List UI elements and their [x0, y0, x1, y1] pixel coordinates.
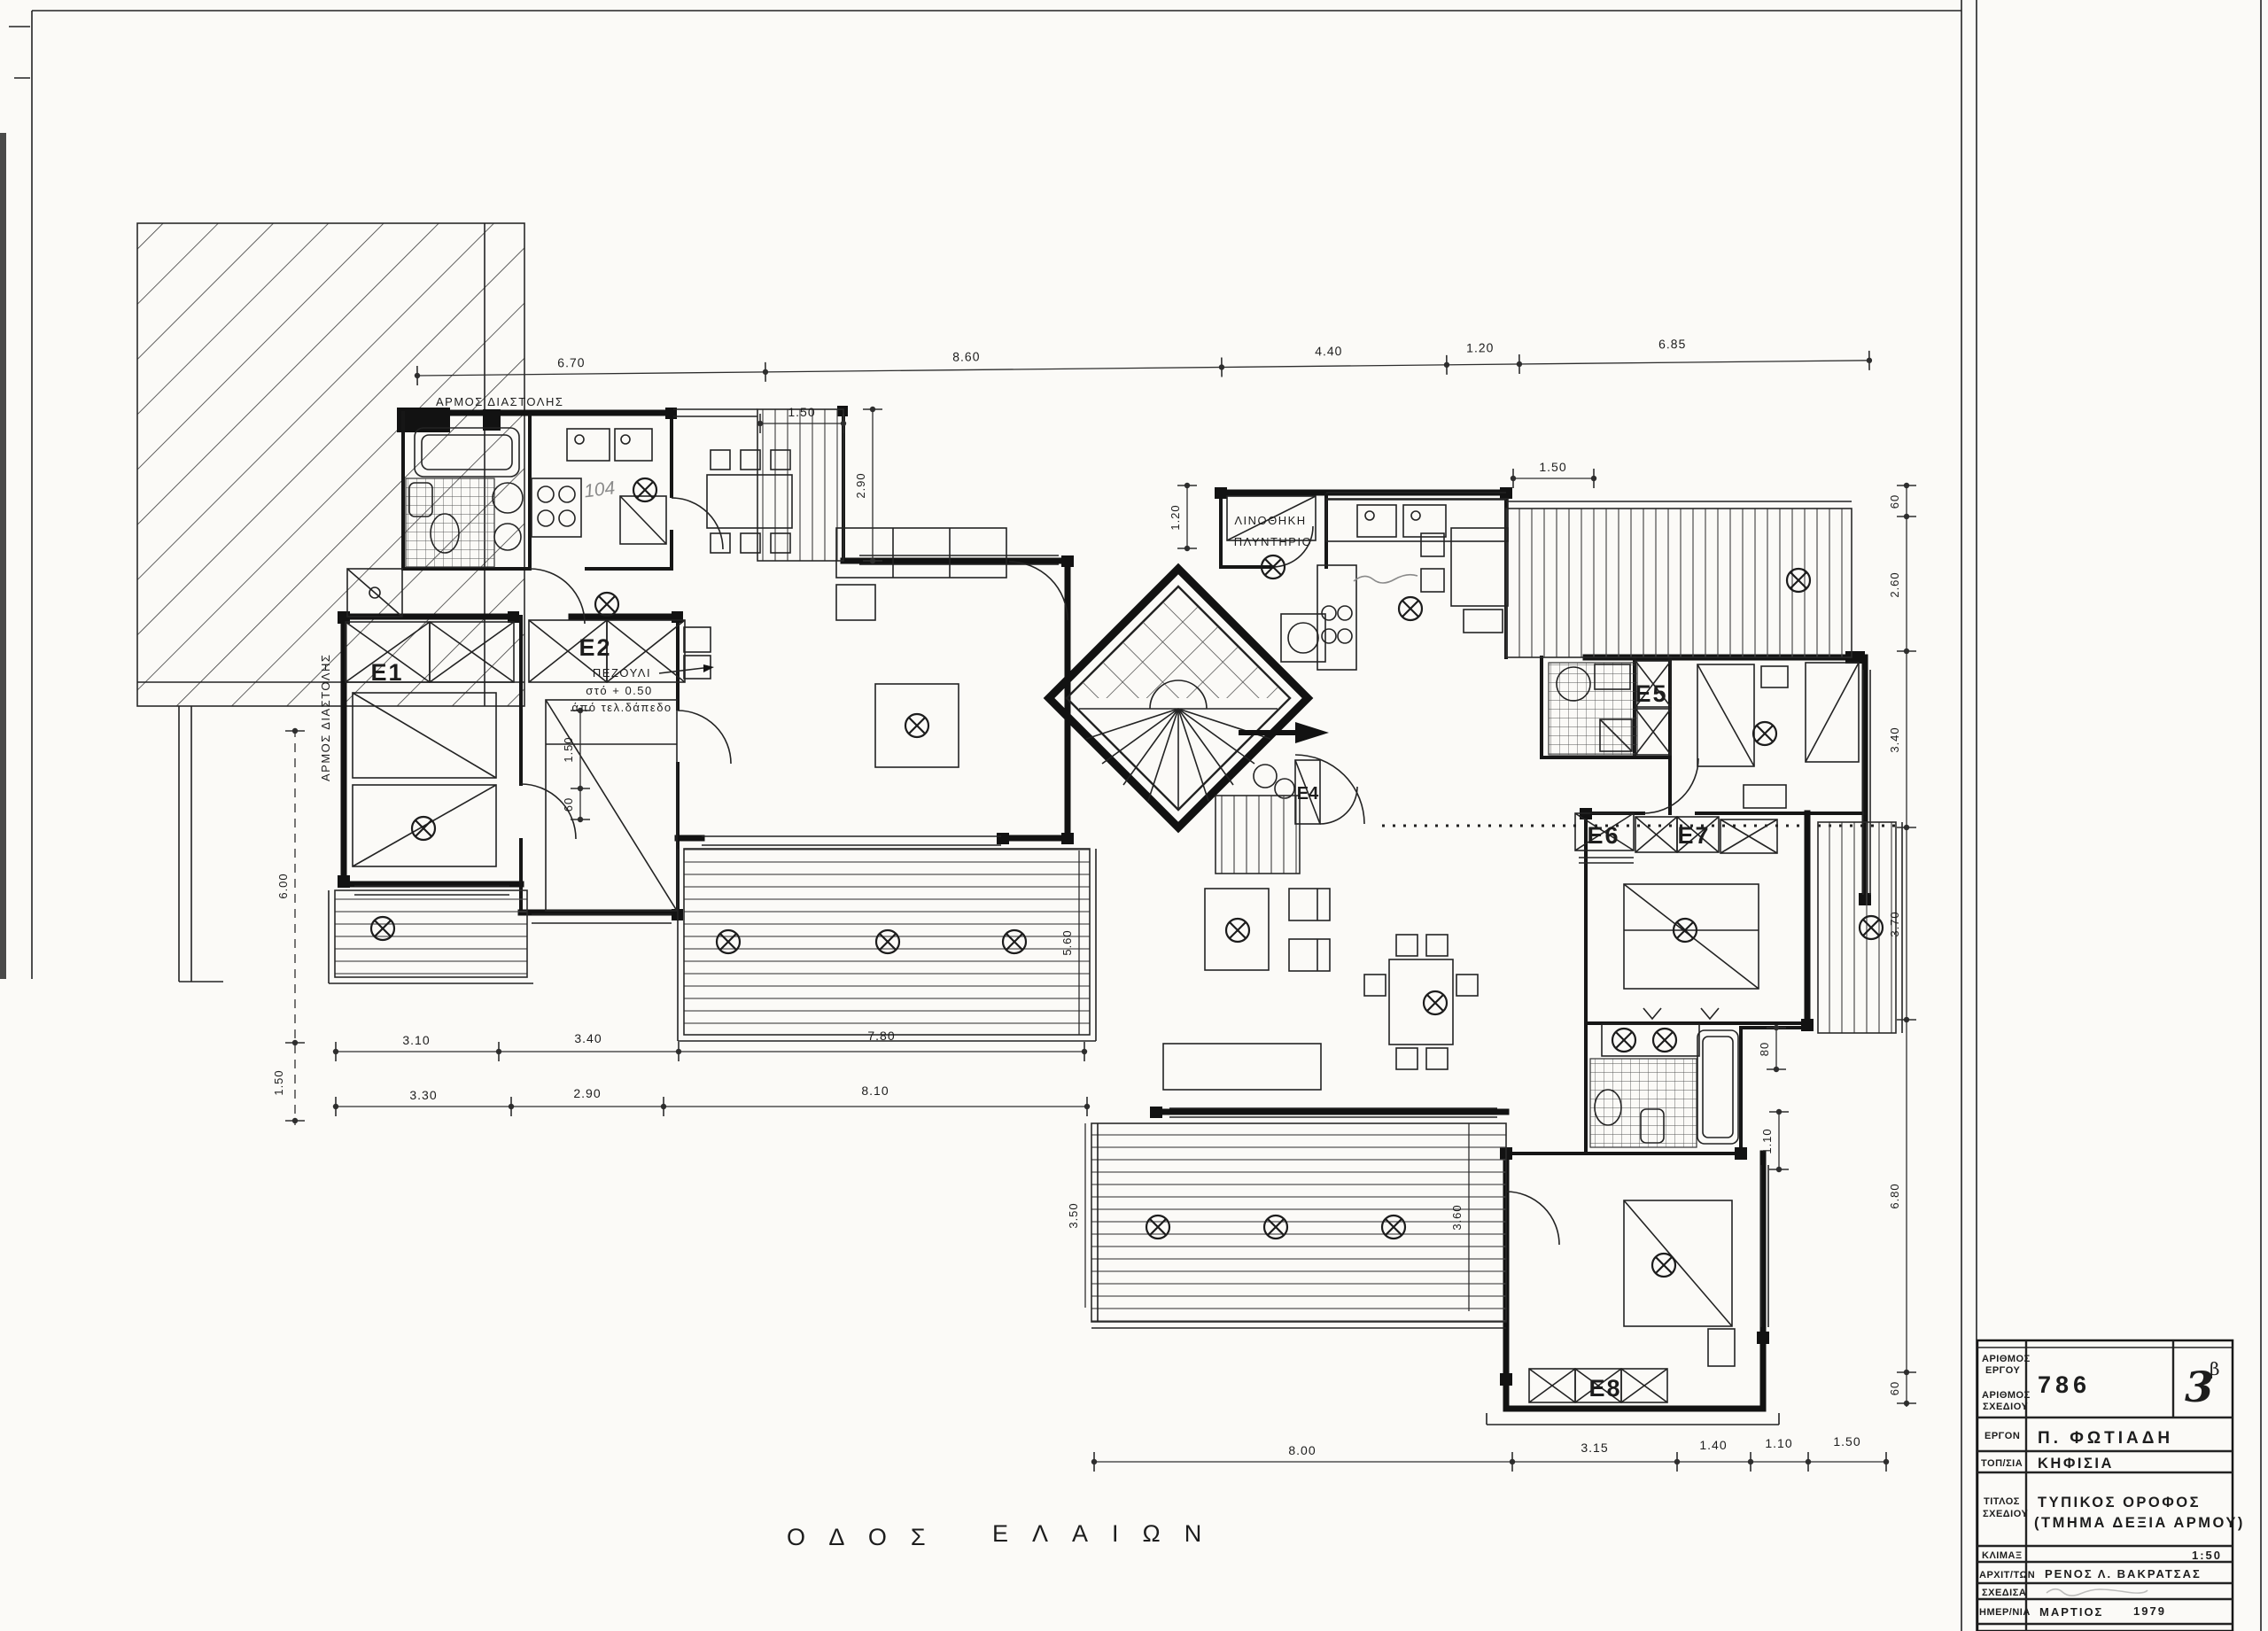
room-label-e8: E8: [1588, 1375, 1621, 1402]
dim-left-2: 1.50: [272, 1069, 285, 1095]
dim-bl2-2: 2.90: [573, 1086, 601, 1100]
tb-label-date: ΗΜΕΡ/ΝΙΑ: [1979, 1607, 2031, 1618]
ledge-note-line3: άπό τελ.δάπεδο: [571, 701, 672, 714]
street-name-word1: ΟΔΟΣ: [787, 1524, 950, 1550]
neighbor-building-hatch: [137, 223, 524, 982]
tb-label-scale: ΚΛΙΜΑΞ: [1982, 1550, 2023, 1561]
tb-label-title-1: ΤΙΤΛΟΣ: [1984, 1496, 2020, 1507]
dim-br-3: 1.40: [1699, 1438, 1727, 1452]
dim-bl1-1: 3.10: [402, 1033, 430, 1047]
linen-closet-label: ΛΙΝΟΘΗΚΗ: [1234, 514, 1306, 527]
room-label-e5: E5: [1635, 680, 1667, 707]
dim-sub-2: 1.50: [1539, 460, 1566, 474]
dim-misc-3: 1.50: [562, 736, 575, 762]
tb-value-project: Π. ΦΩΤΙΑΔΗ: [2038, 1429, 2173, 1448]
room-label-e2: E2: [579, 634, 611, 661]
dim-br-1: 8.00: [1288, 1443, 1316, 1457]
dim-right-6: 60: [1888, 1381, 1901, 1395]
dim-right-1: 60: [1888, 494, 1901, 509]
tb-value-date-year: 1979: [2133, 1604, 2166, 1618]
dim-top-1: 6.70: [557, 355, 585, 369]
laundry-label: ΠΛΥΝΤΗΡΙΟ: [1234, 535, 1312, 548]
dim-misc-6: 3.50: [1067, 1202, 1080, 1228]
dim-br-5: 1.50: [1833, 1434, 1860, 1448]
handwritten-note: 104: [583, 478, 617, 501]
tb-value-location: ΚΗΦΙΣΙΑ: [2038, 1456, 2114, 1472]
dim-top-4: 1.20: [1466, 340, 1494, 354]
street-name: ΟΔΟΣ ΕΛΑΙΩΝ: [787, 1520, 1225, 1550]
dim-br-2: 3.15: [1581, 1441, 1608, 1455]
tb-value-architect: ΡΕΝΟΣ Λ. ΒΑΚΡΑΤΣΑΣ: [2045, 1567, 2202, 1581]
tb-value-title-2: (ΤΜΗΜΑ ΔΕΞΙΑ ΑΡΜΟΥ): [2034, 1515, 2245, 1531]
dim-bl1-2: 3.40: [574, 1031, 602, 1045]
room-label-e1: E1: [370, 659, 403, 686]
tb-label-architect: ΑΡΧΙΤ/ΤΩΝ: [1979, 1570, 2035, 1581]
dim-top-3: 4.40: [1315, 344, 1342, 358]
tb-label-drawing-no-2: ΣΧΕΔΙΟΥ: [1983, 1402, 2028, 1412]
drawing-sheet: 6.70 8.60 4.40 1.20 6.85 1.50 1.50 6.00 …: [0, 0, 2268, 1631]
tb-label-project-no-2: ΕΡΓΟΥ: [1985, 1365, 2021, 1376]
dim-misc-5: 5.60: [1060, 929, 1074, 955]
tb-value-project-no: 786: [2038, 1371, 2091, 1398]
tb-label-drafter: ΣΧΕΔΙΣΑ: [1982, 1588, 2026, 1598]
tb-value-scale: 1:50: [2192, 1549, 2222, 1562]
dim-bl1-3: 7.80: [867, 1029, 895, 1043]
title-block: ΑΡΙΘΜΟΣ ΕΡΓΟΥ ΑΡΙΘΜΟΣ ΣΧΕΔΙΟΥ 786 3 β ΕΡ…: [1977, 1340, 2245, 1631]
dim-bl2-3: 8.10: [861, 1083, 889, 1098]
dim-misc-4: 60: [562, 797, 575, 812]
dim-br-4: 1.10: [1765, 1436, 1792, 1450]
street-name-word2: ΕΛΑΙΩΝ: [992, 1520, 1225, 1547]
ledge-note-line1: ΠΕΖΟΥΛΙ: [593, 666, 651, 680]
tb-label-title-2: ΣΧΕΔΙΟΥ: [1983, 1509, 2028, 1519]
tb-value-title-1: ΤΥΠΙΚΟΣ ΟΡΟΦΟΣ: [2038, 1495, 2201, 1511]
floor-plan-drawing: 6.70 8.60 4.40 1.20 6.85 1.50 1.50 6.00 …: [0, 0, 2268, 1631]
dim-sub-1: 1.50: [788, 405, 815, 419]
room-label-e6: E6: [1587, 822, 1619, 849]
dim-right-5: 6.80: [1888, 1183, 1901, 1208]
dim-right-2: 2.60: [1888, 571, 1901, 597]
tb-label-project: ΕΡΓΟΝ: [1984, 1431, 2020, 1441]
dim-misc-9: 1.10: [1760, 1128, 1774, 1153]
dim-misc-1: 2.90: [854, 472, 867, 498]
tb-value-date-month: ΜΑΡΤΙΟΣ: [2039, 1605, 2103, 1619]
dim-misc-2: 1.20: [1169, 504, 1182, 530]
dim-right-3: 3.40: [1888, 726, 1901, 752]
dim-misc-8: 80: [1758, 1042, 1771, 1056]
tb-label-project-no-1: ΑΡΙΘΜΟΣ: [1982, 1354, 2031, 1364]
ledge-note-line2: στό + 0.50: [586, 684, 653, 697]
room-label-e7: E7: [1677, 822, 1710, 849]
tb-label-location: ΤΟΠ/ΣΙΑ: [1981, 1458, 2023, 1469]
tb-label-drawing-no-1: ΑΡΙΘΜΟΣ: [1982, 1390, 2031, 1401]
expansion-joint-label-left: ΑΡΜΟΣ ΔΙΑΣΤΟΛΗΣ: [319, 654, 332, 781]
dim-top-5: 6.85: [1658, 337, 1686, 351]
dim-top-2: 8.60: [952, 349, 980, 363]
dim-right-4: 3.70: [1888, 911, 1901, 936]
room-label-e4: E4: [1297, 784, 1319, 804]
dim-left-1: 6.00: [276, 873, 290, 898]
dim-bl2-1: 3.30: [409, 1088, 437, 1102]
expansion-joint-label-top: ΑΡΜΟΣ ΔΙΑΣΤΟΛΗΣ: [436, 395, 563, 408]
dim-misc-7: 3.60: [1450, 1204, 1464, 1230]
tb-value-drawing-no-sup: β: [2210, 1358, 2220, 1379]
